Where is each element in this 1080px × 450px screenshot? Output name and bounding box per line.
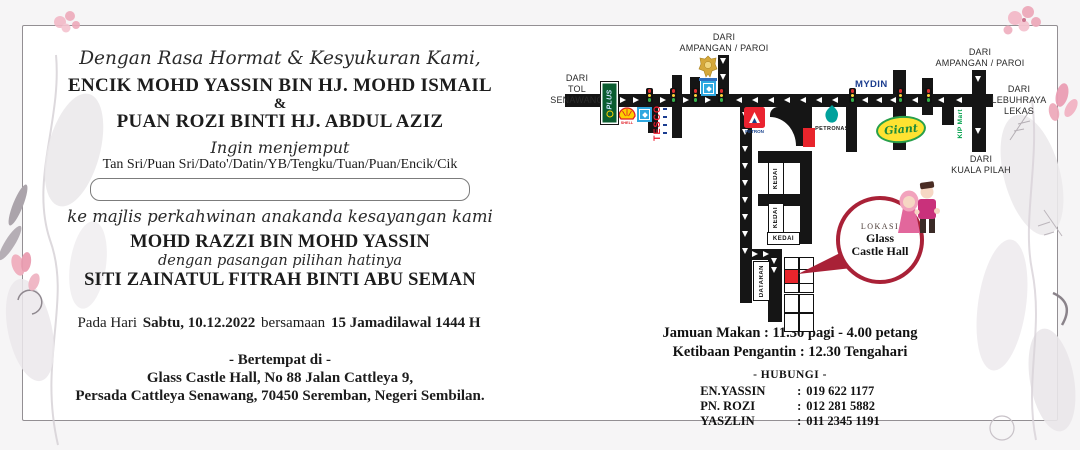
shell-station-icon: SHELL [616, 103, 637, 125]
label-from-lekas: DARILEBUHRAYALEKAS [984, 84, 1054, 117]
arrow-left-icon [938, 97, 944, 103]
kipmart-label: KIP Mart [957, 109, 964, 138]
petron-station-icon [744, 107, 765, 128]
callout-venue-line2: Castle Hall [852, 245, 909, 259]
traffic-light-icon [925, 88, 932, 103]
arrow-down-icon [771, 258, 777, 264]
arrow-left-icon [862, 97, 868, 103]
plus-logo-icon [606, 110, 613, 117]
invitation-card-page: Dengan Rasa Hormat & Kesyukuran Kami, EN… [0, 0, 1080, 450]
shell-label: SHELL [621, 121, 634, 125]
arrow-right-icon [763, 251, 769, 257]
arrow-down-icon [742, 163, 748, 169]
shop-box: KEDAI [767, 232, 800, 245]
schedule-block: Jamuan Makan : 11.30 pagi - 4.00 petang … [640, 324, 940, 429]
arrow-left-icon [736, 97, 742, 103]
contact-name: YASZLIN [700, 414, 792, 429]
arrow-down-icon [742, 248, 748, 254]
arrival-time-line: Ketibaan Pengantin : 12.30 Tengahari [640, 343, 940, 362]
traffic-light-icon [718, 88, 725, 103]
mosque-icon [637, 107, 652, 122]
label-from-kuala-pilah: DARIKUALA PILAH [940, 154, 1022, 176]
giant-store: Giant [875, 114, 927, 145]
road-segment [672, 75, 682, 138]
arrow-left-icon [890, 97, 896, 103]
arrow-right-icon [752, 251, 758, 257]
mydin-store-label: MYDIN [855, 79, 888, 90]
contact-phone: 012 281 5882 [806, 399, 880, 414]
contact-phone: 019 622 1177 [806, 384, 880, 399]
arrow-left-icon [816, 97, 822, 103]
arrow-right-icon [683, 97, 689, 103]
shop-label: KEDAI [773, 168, 779, 189]
arrow-down-icon [975, 128, 981, 134]
arrow-left-icon [832, 97, 838, 103]
shop-box: KEDAI [768, 162, 784, 195]
arrow-left-icon [876, 97, 882, 103]
arrow-down-icon [742, 214, 748, 220]
wedding-couple-illustration [889, 178, 947, 242]
shop-label: KEDAI [773, 207, 779, 228]
tesco-label: TESCO [652, 105, 662, 141]
tesco-stripe-icon [663, 108, 667, 110]
arrow-left-icon [800, 97, 806, 103]
building-grid [784, 294, 814, 332]
traffic-light-icon [646, 88, 653, 103]
arrow-down-icon [771, 267, 777, 273]
arrow-left-icon [784, 97, 790, 103]
square-box: DATARAN [753, 261, 770, 301]
arrow-down-icon [742, 146, 748, 152]
arrow-down-icon [742, 180, 748, 186]
kipmart-store: KIP Mart [951, 106, 969, 142]
arrow-left-icon [768, 97, 774, 103]
arrow-down-icon [720, 58, 726, 64]
road-segment [758, 194, 812, 206]
traffic-light-icon [670, 88, 677, 103]
contact-name: EN.YASSIN [700, 384, 792, 399]
mosque-icon [701, 81, 716, 96]
tesco-stripe-icon [663, 132, 667, 134]
label-from-ampangan-top: DARIAMPANGAN / PAROI [678, 32, 770, 54]
arrow-down-icon [742, 197, 748, 203]
plus-highway-sign: PLUS [600, 81, 619, 125]
contact-heading: - HUBUNGI - [640, 369, 940, 381]
contact-row: YASZLIN : 011 2345 1191 [700, 414, 880, 429]
traffic-light-icon [897, 88, 904, 103]
petron-label: PETRON [741, 129, 768, 134]
traffic-light-icon [692, 88, 699, 103]
contact-phone: 011 2345 1191 [806, 414, 880, 429]
label-from-ampangan-right: DARIAMPANGAN / PAROI [932, 47, 1028, 69]
emblem-icon [698, 55, 718, 79]
arrow-down-icon [742, 231, 748, 237]
arrow-left-icon [956, 97, 962, 103]
plus-label: PLUS [606, 89, 613, 109]
contact-row: EN.YASSIN : 019 622 1177 [700, 384, 880, 399]
contact-name: PN. ROZI [700, 399, 792, 414]
arrow-right-icon [705, 97, 711, 103]
giant-label: Giant [884, 122, 919, 138]
arrow-down-icon [720, 74, 726, 80]
tesco-stripe-icon [663, 116, 667, 118]
square-label: DATARAN [759, 265, 765, 297]
petronas-label: PETRONAS [806, 126, 858, 132]
traffic-light-icon [849, 88, 856, 103]
shop-label: KEDAI [773, 236, 794, 242]
contact-list: EN.YASSIN : 019 622 1177 PN. ROZI : 012 … [700, 384, 880, 429]
tesco-stripe-icon [663, 124, 667, 126]
arrow-down-icon [975, 76, 981, 82]
shop-box: KEDAI [768, 203, 784, 233]
arrow-left-icon [912, 97, 918, 103]
road-south [740, 107, 752, 303]
arrow-left-icon [752, 97, 758, 103]
contact-row: PN. ROZI : 012 281 5882 [700, 399, 880, 414]
petronas-station-icon [823, 104, 841, 125]
